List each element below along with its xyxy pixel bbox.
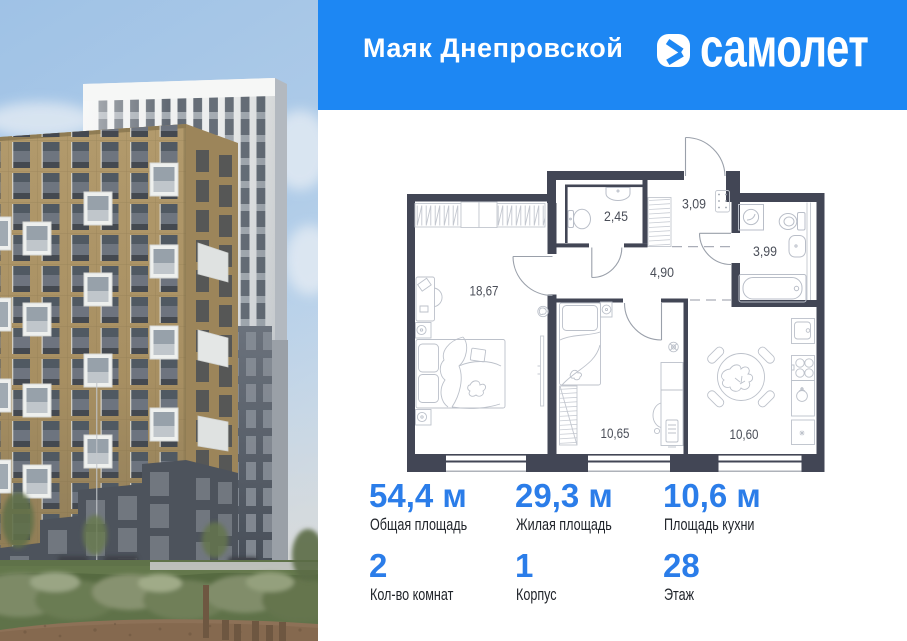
svg-text:18,67: 18,67 [470, 283, 499, 299]
svg-text:10,60: 10,60 [730, 426, 759, 442]
svg-text:3,09: 3,09 [682, 196, 706, 212]
svg-text:2,45: 2,45 [604, 208, 628, 224]
svg-text:10,65: 10,65 [601, 425, 630, 441]
svg-text:4,90: 4,90 [650, 264, 674, 280]
svg-text:3,99: 3,99 [753, 243, 777, 259]
